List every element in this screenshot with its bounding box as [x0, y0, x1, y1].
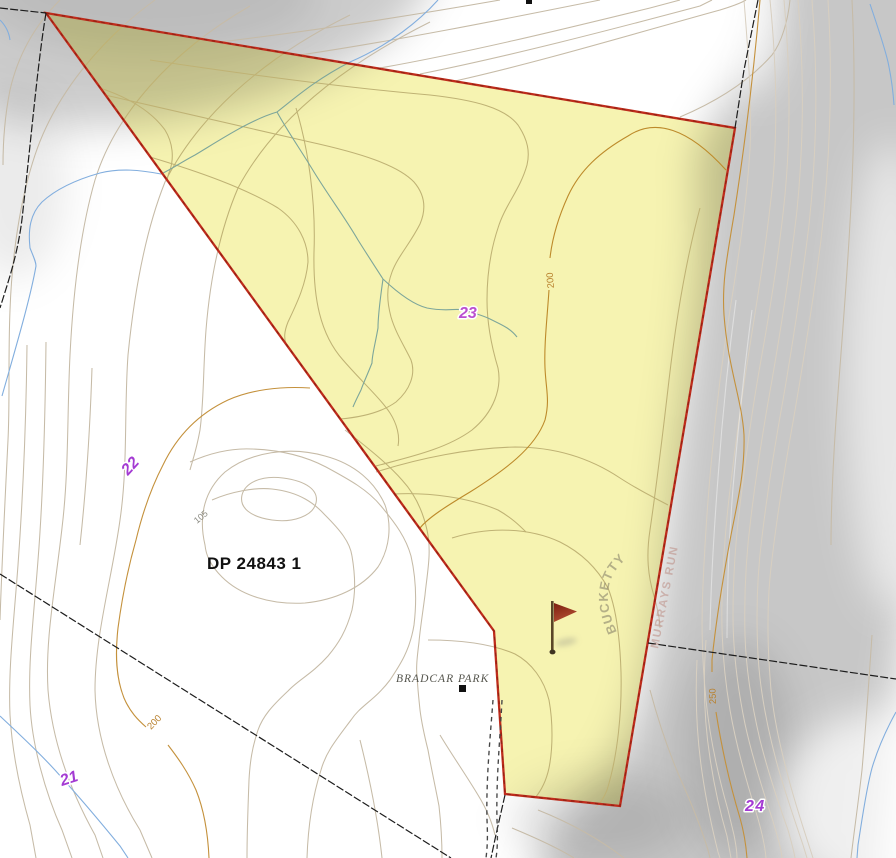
- svg-text:DP 24843 1: DP 24843 1: [207, 554, 301, 573]
- svg-text:200: 200: [545, 272, 557, 289]
- svg-text:250: 250: [707, 688, 719, 704]
- svg-text:BRADCAR PARK: BRADCAR PARK: [396, 673, 490, 685]
- svg-text:23: 23: [458, 305, 477, 322]
- svg-text:24: 24: [744, 798, 766, 815]
